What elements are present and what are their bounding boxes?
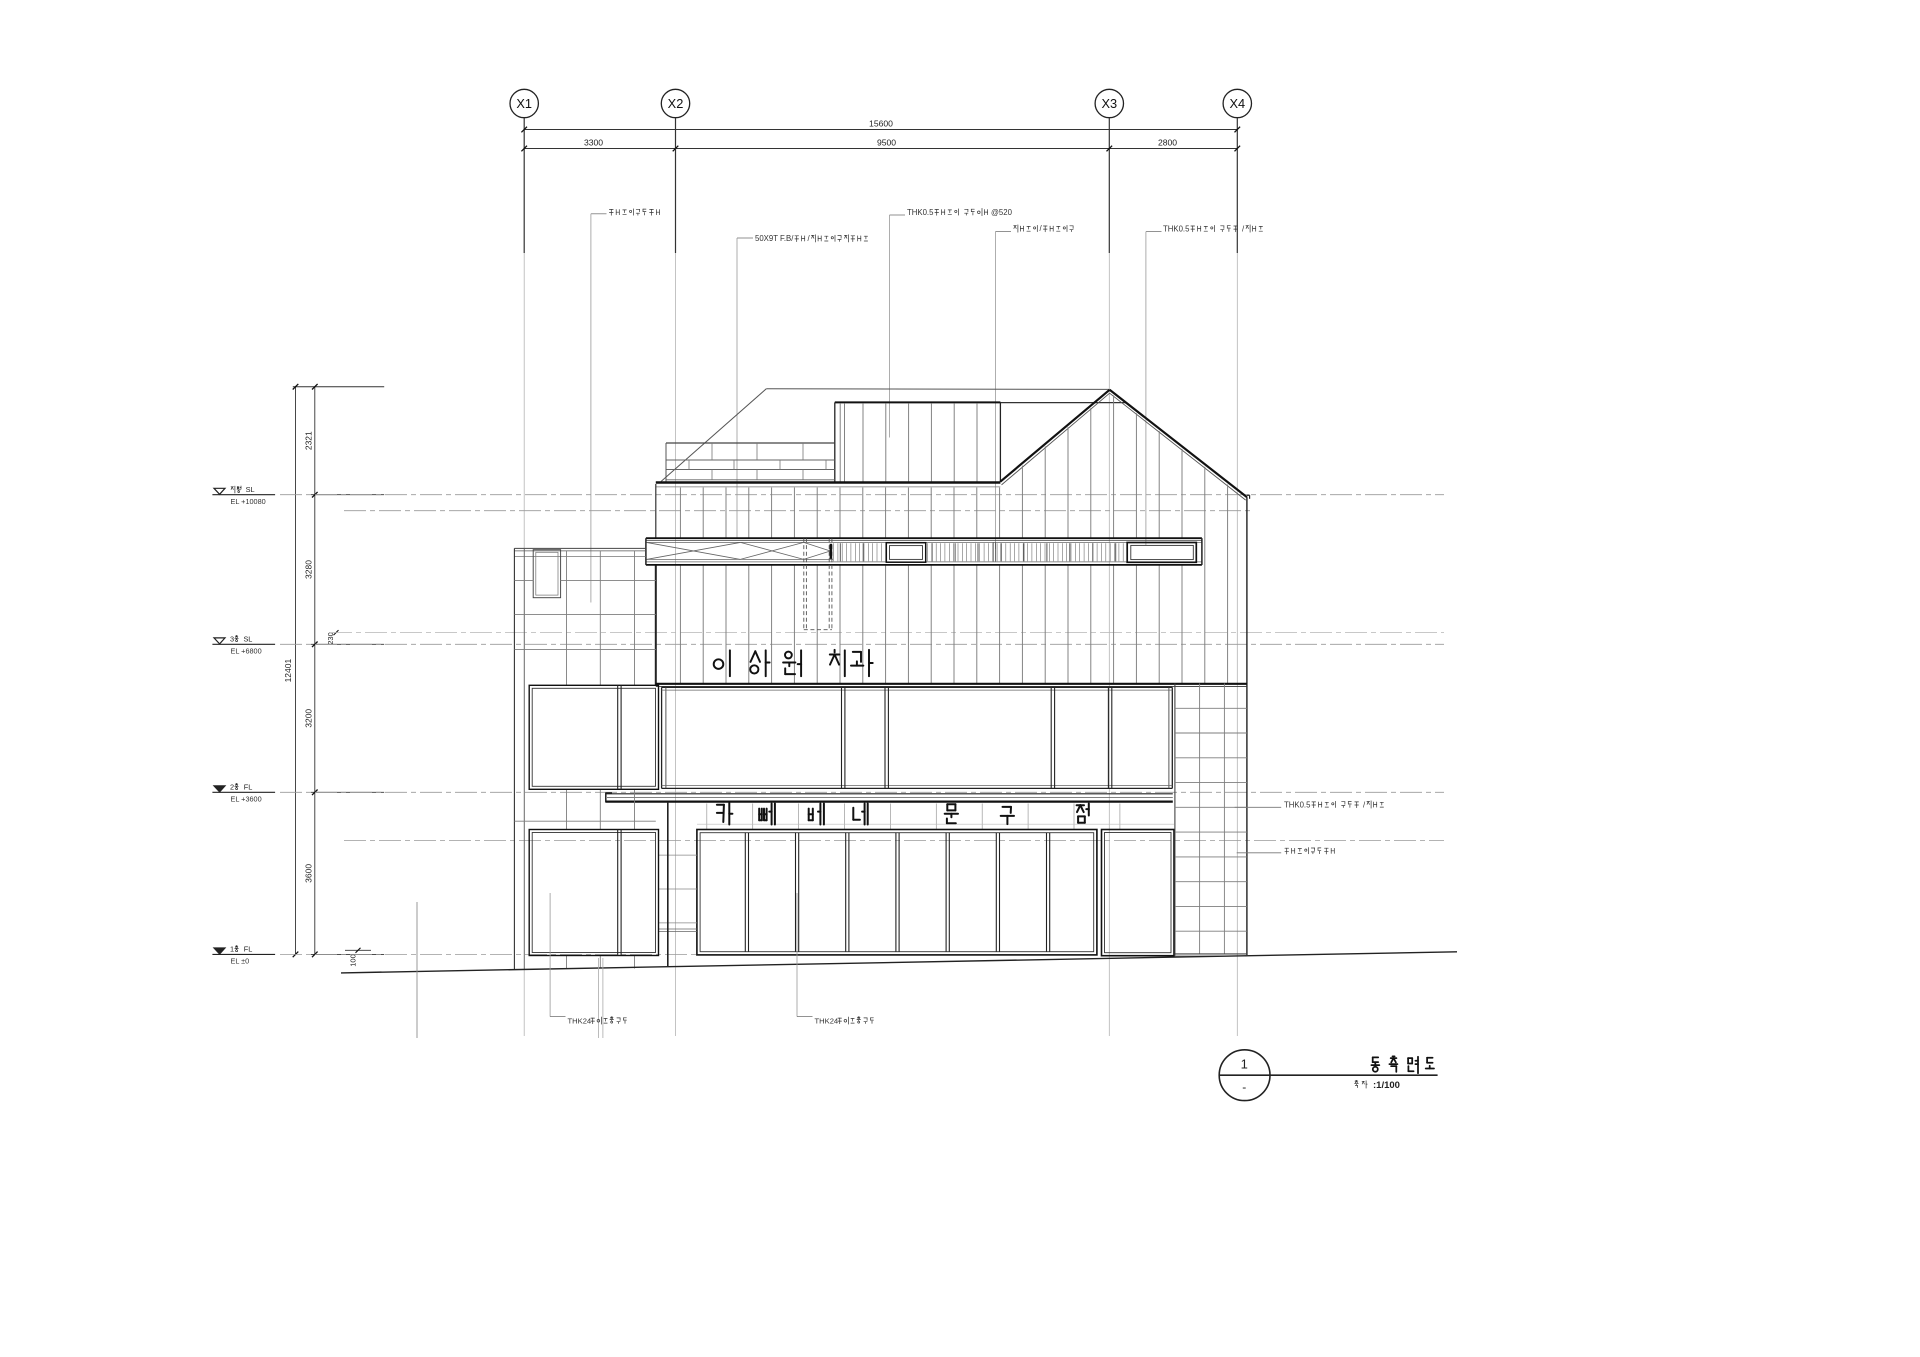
svg-text:EL +6800: EL +6800	[231, 646, 262, 655]
svg-text:X3: X3	[1101, 96, 1117, 111]
svg-text:3: 3	[230, 635, 234, 644]
svg-text:2: 2	[230, 783, 234, 792]
svg-text:2321: 2321	[303, 431, 313, 450]
svg-text:3600: 3600	[303, 864, 313, 883]
svg-text:230: 230	[326, 632, 335, 645]
svg-text:@520: @520	[991, 208, 1013, 217]
svg-text:50X9T F.B/: 50X9T F.B/	[755, 234, 794, 243]
svg-text:1: 1	[230, 945, 234, 954]
svg-text:-: -	[1242, 1080, 1246, 1094]
svg-text:100: 100	[348, 954, 357, 967]
svg-text:EL ±0: EL ±0	[231, 957, 250, 966]
svg-text:L: L	[250, 485, 254, 494]
svg-text:THK24: THK24	[568, 1016, 592, 1025]
svg-text:3300: 3300	[584, 137, 603, 147]
svg-text:3280: 3280	[303, 560, 313, 579]
svg-text:15600: 15600	[869, 118, 893, 128]
svg-text:EL +3600: EL +3600	[231, 794, 262, 803]
svg-text:THK0.5: THK0.5	[1163, 225, 1190, 234]
svg-text:EL +10080: EL +10080	[231, 497, 266, 506]
svg-text:1: 1	[1241, 1057, 1248, 1072]
svg-text:9500: 9500	[877, 137, 896, 147]
svg-text:L: L	[248, 945, 252, 954]
svg-text:3200: 3200	[303, 709, 313, 728]
svg-text:X2: X2	[668, 96, 684, 111]
svg-text:X1: X1	[516, 96, 532, 111]
svg-text:L: L	[248, 635, 252, 644]
svg-text:THK24: THK24	[815, 1016, 839, 1025]
svg-text:THK0.5: THK0.5	[1284, 800, 1311, 809]
svg-text::1/100: :1/100	[1373, 1080, 1400, 1091]
svg-text:THK0.5: THK0.5	[907, 208, 934, 217]
svg-text:12401: 12401	[283, 659, 293, 683]
svg-text:2800: 2800	[1158, 137, 1177, 147]
svg-text:L: L	[248, 783, 252, 792]
svg-text:X4: X4	[1229, 96, 1245, 111]
